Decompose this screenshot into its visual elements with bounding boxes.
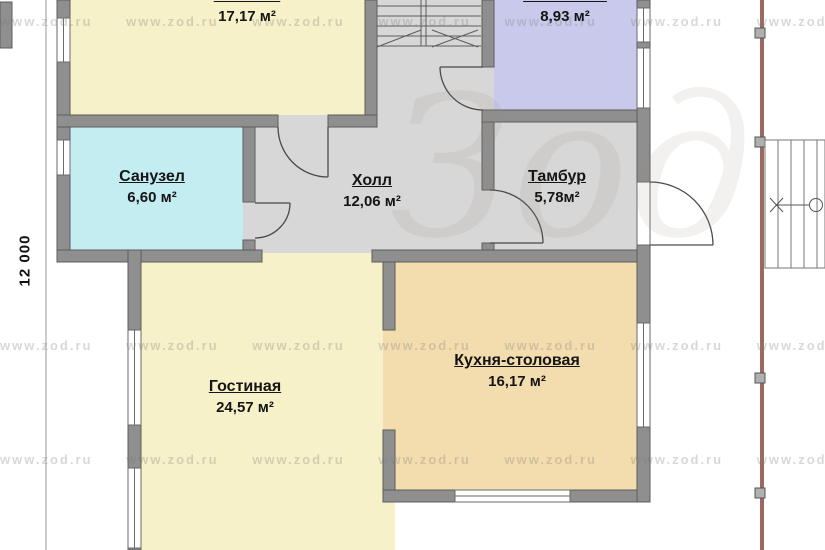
entrance-door-gap xyxy=(637,182,650,245)
room-label-holl: Холл 12,06 м² xyxy=(343,172,401,211)
exterior-steps-outline xyxy=(765,140,825,268)
wall-sanuzel-right-upper xyxy=(243,127,255,202)
room-label-kotelnaya: Котельная 8,93 м² xyxy=(523,0,607,26)
wall-sanuzel-bottom xyxy=(57,250,262,262)
wall-kotelnaya-left xyxy=(482,0,494,67)
room-name: Санузел xyxy=(119,168,185,186)
room-area: 17,17 м² xyxy=(214,8,280,25)
room-label-sanuzel: Санузел 6,60 м² xyxy=(119,168,185,207)
room-label-gostinaya: Гостиная 24,57 м² xyxy=(209,378,281,417)
room-name: Гостиная xyxy=(209,378,281,396)
stair-exterior xyxy=(765,140,825,268)
room-area: 5,78м² xyxy=(528,189,586,206)
wall-hall-bottom xyxy=(372,250,650,262)
watermark-band: www.zod.ru www.zod.ru www.zod.ru www.zod… xyxy=(0,14,825,32)
floor-plan-canvas: Зод www.zod.ru www.zod.ru www.zod.ru www… xyxy=(0,0,825,550)
wall-sanuzel-right-stub xyxy=(243,240,255,250)
room-area: 12,06 м² xyxy=(343,193,401,210)
room-area: 8,93 м² xyxy=(523,8,607,25)
dimension-label: 12 000 xyxy=(17,217,34,305)
room-area: 16,17 м² xyxy=(454,373,580,390)
terrace-post xyxy=(755,373,765,383)
room-name: Тамбур xyxy=(528,168,586,186)
wall-kotelnaya-bottom xyxy=(482,110,650,122)
watermark-band: www.zod.ru www.zod.ru www.zod.ru www.zod… xyxy=(0,338,825,356)
room-area: 6,60 м² xyxy=(119,189,185,206)
door-entrance-arc xyxy=(650,182,713,245)
room-label-komnata: Комната 17,17 м² xyxy=(214,0,280,26)
wall-komnata-bottom-left xyxy=(57,115,278,127)
room-label-kuhnya: Кухня-столовая 16,17 м² xyxy=(454,352,580,391)
room-name: Холл xyxy=(343,172,401,190)
wall-tambur-left-upper xyxy=(482,122,494,190)
wall-kitchen-left-upper xyxy=(383,262,395,330)
room-name: Комната xyxy=(214,0,280,5)
room-name: Котельная xyxy=(523,0,607,5)
terrace-post xyxy=(755,488,765,498)
terrace-post xyxy=(755,137,765,147)
watermark-band: www.zod.ru www.zod.ru www.zod.ru www.zod… xyxy=(0,452,825,470)
room-label-tambur: Тамбур 5,78м² xyxy=(528,168,586,207)
wall-komnata-bottom-right xyxy=(328,115,377,127)
room-name: Кухня-столовая xyxy=(454,352,580,370)
room-area: 24,57 м² xyxy=(209,399,281,416)
